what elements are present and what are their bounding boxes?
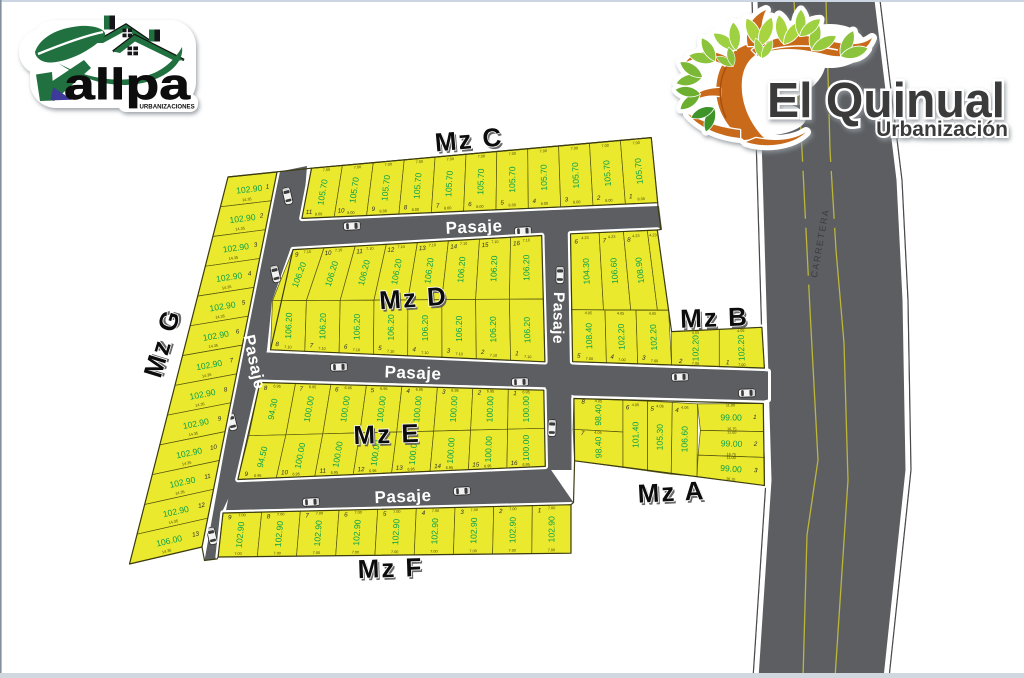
svg-text:4.05: 4.05	[656, 404, 664, 408]
svg-text:102.90: 102.90	[468, 517, 479, 544]
svg-text:105.70: 105.70	[443, 170, 454, 197]
svg-text:7.00: 7.00	[539, 149, 547, 154]
svg-text:1: 1	[515, 350, 519, 357]
svg-text:7.00: 7.00	[548, 506, 555, 510]
svg-text:7.10: 7.10	[429, 243, 437, 247]
svg-text:6.95: 6.95	[522, 390, 529, 394]
svg-text:7.10: 7.10	[455, 352, 463, 356]
svg-text:7.10: 7.10	[397, 245, 405, 249]
svg-text:6.95: 6.95	[369, 469, 377, 473]
svg-text:7.00: 7.00	[313, 551, 320, 555]
svg-text:11: 11	[306, 209, 313, 216]
svg-text:106.60: 106.60	[679, 426, 689, 453]
svg-text:14: 14	[434, 463, 442, 470]
svg-text:Urbanización: Urbanización	[876, 118, 1008, 141]
svg-text:7.00: 7.00	[570, 146, 578, 151]
svg-text:7.00: 7.00	[432, 509, 439, 513]
svg-text:102.20: 102.20	[648, 324, 659, 351]
svg-text:15: 15	[472, 461, 480, 468]
svg-text:7.00: 7.00	[323, 168, 331, 173]
svg-text:7.10: 7.10	[387, 349, 395, 353]
svg-text:106.20: 106.20	[454, 315, 464, 342]
svg-text:8.00: 8.00	[605, 199, 613, 203]
svg-text:4.23: 4.23	[632, 234, 640, 238]
svg-text:4.23: 4.23	[608, 235, 616, 239]
svg-text:6.95: 6.95	[273, 384, 280, 388]
svg-text:6.95: 6.95	[446, 466, 454, 470]
svg-text:6.95: 6.95	[309, 385, 316, 389]
svg-text:8.00: 8.00	[541, 202, 549, 206]
svg-text:4.05: 4.05	[585, 311, 592, 315]
svg-text:102.90: 102.90	[507, 517, 517, 544]
svg-text:Pasaje: Pasaje	[549, 292, 567, 344]
svg-text:11.00: 11.00	[726, 403, 735, 407]
svg-text:Pasaje: Pasaje	[374, 486, 432, 507]
svg-text:7.00: 7.00	[618, 358, 626, 362]
svg-text:7.00: 7.00	[430, 550, 437, 554]
svg-text:106.20: 106.20	[521, 254, 531, 281]
svg-text:8.00: 8.00	[508, 203, 516, 207]
svg-text:104.30: 104.30	[581, 258, 592, 285]
svg-text:8.00: 8.00	[444, 206, 452, 210]
svg-text:4.05: 4.05	[632, 403, 640, 407]
svg-text:7.00: 7.00	[469, 549, 476, 553]
svg-text:11.00: 11.00	[727, 431, 736, 435]
svg-text:2: 2	[477, 389, 482, 396]
svg-text:8.00: 8.00	[412, 208, 420, 212]
svg-text:100.00: 100.00	[521, 435, 531, 462]
svg-text:102.20: 102.20	[691, 335, 701, 362]
svg-text:7.00: 7.00	[354, 511, 361, 515]
svg-text:7.00: 7.00	[316, 512, 323, 516]
svg-text:7.00: 7.00	[586, 357, 594, 361]
svg-text:105.30: 105.30	[655, 424, 665, 451]
svg-text:99.00: 99.00	[720, 412, 742, 422]
svg-text:8.00: 8.00	[573, 200, 581, 204]
svg-text:7.00: 7.00	[354, 165, 362, 170]
svg-text:16: 16	[511, 460, 519, 467]
svg-text:Mz C: Mz C	[433, 122, 504, 158]
svg-text:106.20: 106.20	[420, 315, 430, 342]
svg-text:11: 11	[356, 248, 363, 255]
svg-text:7.10: 7.10	[421, 351, 429, 355]
svg-text:7.00: 7.00	[470, 508, 477, 512]
svg-text:106.20: 106.20	[386, 314, 396, 341]
svg-text:13: 13	[396, 465, 404, 472]
svg-text:98.40: 98.40	[593, 404, 603, 426]
svg-text:7.10: 7.10	[335, 248, 343, 252]
svg-text:100.00: 100.00	[521, 396, 531, 423]
svg-text:2: 2	[678, 358, 683, 365]
svg-text:7.10: 7.10	[460, 242, 468, 246]
svg-text:6.95: 6.95	[487, 389, 494, 393]
svg-text:105.70: 105.70	[507, 166, 517, 193]
svg-text:7.10: 7.10	[491, 240, 499, 244]
svg-text:106.20: 106.20	[283, 312, 294, 339]
svg-text:7.00: 7.00	[548, 548, 555, 552]
svg-text:6.95: 6.95	[522, 463, 530, 467]
svg-text:10: 10	[281, 469, 289, 476]
svg-text:7.10: 7.10	[490, 353, 498, 357]
svg-text:105.70: 105.70	[539, 164, 550, 191]
svg-text:6.95: 6.95	[344, 386, 351, 390]
svg-text:1: 1	[726, 359, 730, 366]
svg-text:7.00: 7.00	[508, 152, 516, 157]
svg-text:102.20: 102.20	[736, 334, 747, 361]
svg-text:8.00: 8.00	[347, 211, 355, 215]
svg-text:7.00: 7.00	[234, 552, 241, 556]
svg-text:12: 12	[357, 466, 365, 473]
svg-text:105.70: 105.70	[601, 160, 613, 187]
svg-text:4.05: 4.05	[594, 431, 602, 435]
svg-text:102.90: 102.90	[390, 518, 401, 545]
svg-text:100.00: 100.00	[484, 396, 495, 423]
svg-text:10: 10	[324, 250, 332, 257]
svg-text:6.95: 6.95	[292, 472, 300, 476]
svg-text:7.10: 7.10	[366, 247, 374, 251]
svg-text:1: 1	[753, 414, 757, 421]
svg-text:7.00: 7.00	[384, 162, 392, 167]
svg-text:4.23: 4.23	[581, 236, 589, 240]
svg-text:100.00: 100.00	[445, 437, 457, 464]
svg-text:106.20: 106.20	[351, 313, 361, 340]
svg-text:4.23: 4.23	[649, 233, 657, 237]
svg-text:106.20: 106.20	[488, 316, 498, 343]
svg-text:7.00: 7.00	[393, 510, 400, 514]
svg-text:106.20: 106.20	[522, 317, 533, 344]
svg-text:2: 2	[753, 441, 758, 448]
svg-text:2: 2	[498, 508, 503, 515]
svg-text:105.70: 105.70	[570, 162, 581, 189]
svg-text:105.70: 105.70	[475, 168, 486, 195]
svg-text:12: 12	[387, 246, 395, 253]
svg-text:8.00: 8.00	[315, 212, 323, 216]
svg-text:14: 14	[450, 243, 458, 250]
svg-text:106.60: 106.60	[608, 257, 620, 284]
svg-text:100.00: 100.00	[448, 396, 460, 423]
svg-text:Mz F: Mz F	[357, 552, 424, 584]
svg-text:Mz A: Mz A	[637, 475, 706, 509]
svg-text:6.95: 6.95	[484, 464, 492, 468]
svg-text:6.95: 6.95	[380, 387, 387, 391]
svg-text:8.00: 8.00	[476, 205, 484, 209]
svg-text:7.00: 7.00	[632, 141, 640, 146]
svg-text:7.00: 7.00	[277, 512, 284, 516]
svg-text:7.10: 7.10	[284, 345, 292, 349]
svg-text:1: 1	[629, 193, 633, 200]
svg-text:100.00: 100.00	[483, 436, 494, 463]
svg-text:16: 16	[513, 240, 521, 247]
svg-text:4.05: 4.05	[681, 406, 689, 410]
svg-text:8.00: 8.00	[637, 197, 645, 201]
svg-text:6.95: 6.95	[416, 388, 423, 392]
svg-text:7.00: 7.00	[415, 160, 423, 165]
svg-text:7.00: 7.00	[273, 551, 280, 555]
svg-text:7.10: 7.10	[318, 347, 326, 351]
svg-text:1: 1	[513, 390, 517, 397]
svg-text:6.95: 6.95	[451, 388, 458, 392]
svg-text:6.95: 6.95	[331, 471, 339, 475]
svg-text:7.00: 7.00	[508, 549, 515, 553]
svg-text:7.10: 7.10	[353, 348, 361, 352]
svg-text:102.90: 102.90	[351, 519, 363, 546]
svg-text:4.05: 4.05	[649, 312, 656, 316]
svg-text:4.05: 4.05	[617, 312, 624, 316]
svg-text:10: 10	[338, 207, 346, 214]
svg-text:7.00: 7.00	[509, 507, 516, 511]
svg-text:7.00: 7.00	[238, 513, 245, 517]
svg-text:7.00: 7.00	[738, 363, 746, 367]
svg-text:15: 15	[481, 242, 489, 249]
svg-text:106.20: 106.20	[317, 313, 328, 340]
svg-text:Mz E: Mz E	[353, 418, 421, 450]
svg-text:108.40: 108.40	[584, 323, 595, 350]
svg-text:101.40: 101.40	[630, 422, 640, 449]
svg-text:6.95: 6.95	[254, 474, 262, 478]
svg-text:99.00: 99.00	[720, 463, 742, 475]
svg-text:11.00: 11.00	[727, 456, 736, 460]
svg-text:7.10: 7.10	[524, 355, 532, 359]
svg-text:Pasaje: Pasaje	[384, 362, 442, 383]
svg-text:7.00: 7.00	[651, 359, 659, 363]
svg-text:7.10: 7.10	[522, 238, 530, 242]
svg-text:8.00: 8.00	[379, 209, 387, 213]
svg-text:106.20: 106.20	[488, 255, 499, 282]
svg-text:102.90: 102.90	[429, 518, 440, 545]
svg-text:7.00: 7.00	[601, 144, 609, 149]
svg-text:102.90: 102.90	[312, 520, 324, 547]
svg-text:Mz B: Mz B	[680, 301, 750, 333]
svg-text:6.95: 6.95	[407, 467, 415, 471]
svg-text:13: 13	[419, 245, 427, 252]
svg-text:7.10: 7.10	[303, 250, 311, 254]
svg-text:1: 1	[538, 507, 542, 514]
svg-text:98.40: 98.40	[593, 436, 604, 458]
svg-text:11: 11	[319, 468, 326, 475]
svg-text:Pasaje: Pasaje	[445, 216, 503, 237]
svg-text:102.20: 102.20	[616, 323, 627, 350]
svg-text:102.90: 102.90	[546, 516, 556, 543]
svg-text:allpa: allpa	[64, 60, 191, 109]
svg-text:99.00: 99.00	[721, 438, 743, 449]
svg-text:URBANIZACIONES: URBANIZACIONES	[140, 103, 195, 110]
svg-text:Mz D: Mz D	[378, 281, 449, 316]
